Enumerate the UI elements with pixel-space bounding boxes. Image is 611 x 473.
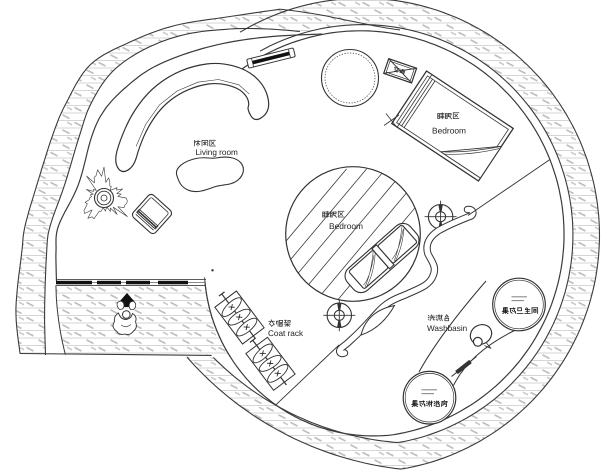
- svg-text:Washbasin: Washbasin: [427, 324, 468, 333]
- svg-text:Coat rack: Coat rack: [268, 329, 304, 338]
- svg-text:Bedroom: Bedroom: [432, 126, 466, 136]
- svg-text:Living room: Living room: [195, 148, 238, 157]
- svg-text:Bedroom: Bedroom: [329, 221, 363, 231]
